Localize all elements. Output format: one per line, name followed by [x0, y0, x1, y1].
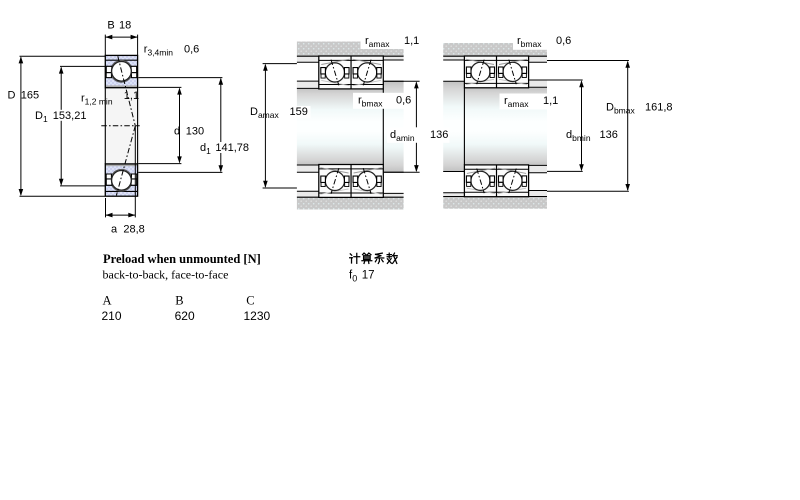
svg-text:d1: d1: [200, 142, 211, 156]
svg-text:D1: D1: [35, 110, 48, 124]
svg-text:1,1: 1,1: [543, 95, 558, 107]
svg-text:Dbmax: Dbmax: [606, 102, 635, 116]
svg-text:161,8: 161,8: [645, 102, 673, 114]
svg-text:1,1: 1,1: [124, 90, 139, 102]
svg-text:d: d: [174, 125, 180, 137]
svg-text:159: 159: [290, 106, 308, 118]
svg-text:back-to-back, face-to-face: back-to-back, face-to-face: [103, 267, 229, 281]
svg-text:165: 165: [21, 90, 39, 102]
svg-text:130: 130: [186, 125, 204, 137]
svg-text:0,6: 0,6: [184, 44, 199, 56]
svg-text:B: B: [175, 294, 183, 308]
svg-text:a: a: [111, 223, 118, 235]
svg-text:141,78: 141,78: [215, 142, 249, 154]
svg-text:A: A: [103, 294, 112, 308]
svg-text:0,6: 0,6: [396, 94, 411, 106]
svg-text:C: C: [246, 294, 254, 308]
svg-text:r3,4min: r3,4min: [144, 44, 173, 58]
svg-text:1,1: 1,1: [404, 35, 419, 47]
svg-text:B: B: [107, 20, 114, 32]
svg-text:D: D: [8, 90, 16, 102]
svg-text:620: 620: [175, 309, 195, 323]
svg-text:210: 210: [102, 309, 122, 323]
svg-text:Damax: Damax: [250, 106, 279, 120]
svg-text:153,21: 153,21: [53, 110, 87, 122]
svg-text:1230: 1230: [244, 309, 271, 323]
svg-text:Preload when unmounted [N]: Preload when unmounted [N]: [103, 252, 261, 266]
svg-text:28,8: 28,8: [123, 223, 144, 235]
svg-text:136: 136: [600, 129, 618, 141]
svg-text:dbmin: dbmin: [566, 129, 591, 143]
svg-text:f017: f017: [349, 269, 375, 283]
svg-text:136: 136: [430, 129, 448, 141]
svg-text:18: 18: [119, 20, 131, 32]
svg-text:0,6: 0,6: [556, 35, 571, 47]
